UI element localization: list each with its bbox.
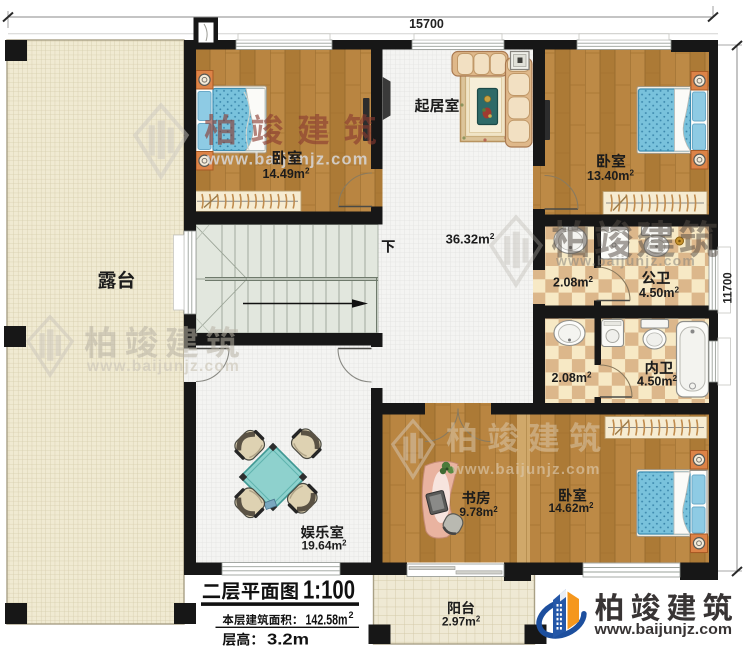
svg-text:11700: 11700	[723, 272, 735, 303]
svg-text:2: 2	[349, 610, 354, 620]
svg-text:1:100: 1:100	[303, 575, 355, 605]
svg-text:19.64m2: 19.64m2	[301, 538, 347, 552]
svg-text:14.49m2: 14.49m2	[263, 167, 310, 181]
svg-text:2.08m2: 2.08m2	[552, 371, 592, 385]
svg-text:www.baijunjz.com: www.baijunjz.com	[555, 253, 696, 269]
svg-text:www.baijunjz.com: www.baijunjz.com	[86, 358, 240, 375]
svg-text:36.32m2: 36.32m2	[446, 231, 495, 247]
svg-text:13.40m2: 13.40m2	[587, 169, 634, 183]
svg-text:2.97m2: 2.97m2	[442, 614, 481, 628]
svg-text:142.58m: 142.58m	[306, 611, 348, 628]
svg-text:3.2m: 3.2m	[267, 632, 309, 649]
svg-text:4.50m2: 4.50m2	[639, 286, 679, 300]
svg-text:15700: 15700	[409, 17, 444, 31]
svg-text:9.78m2: 9.78m2	[459, 505, 498, 519]
svg-text:4.50m2: 4.50m2	[637, 374, 677, 388]
svg-text:14.62m2: 14.62m2	[548, 501, 594, 515]
svg-text:www.baijunjz.com: www.baijunjz.com	[593, 621, 732, 638]
svg-text:www.baijunjz.com: www.baijunjz.com	[451, 461, 601, 478]
svg-text:www.baijunjz.com: www.baijunjz.com	[206, 151, 369, 169]
svg-text:2.08m2: 2.08m2	[553, 275, 593, 289]
